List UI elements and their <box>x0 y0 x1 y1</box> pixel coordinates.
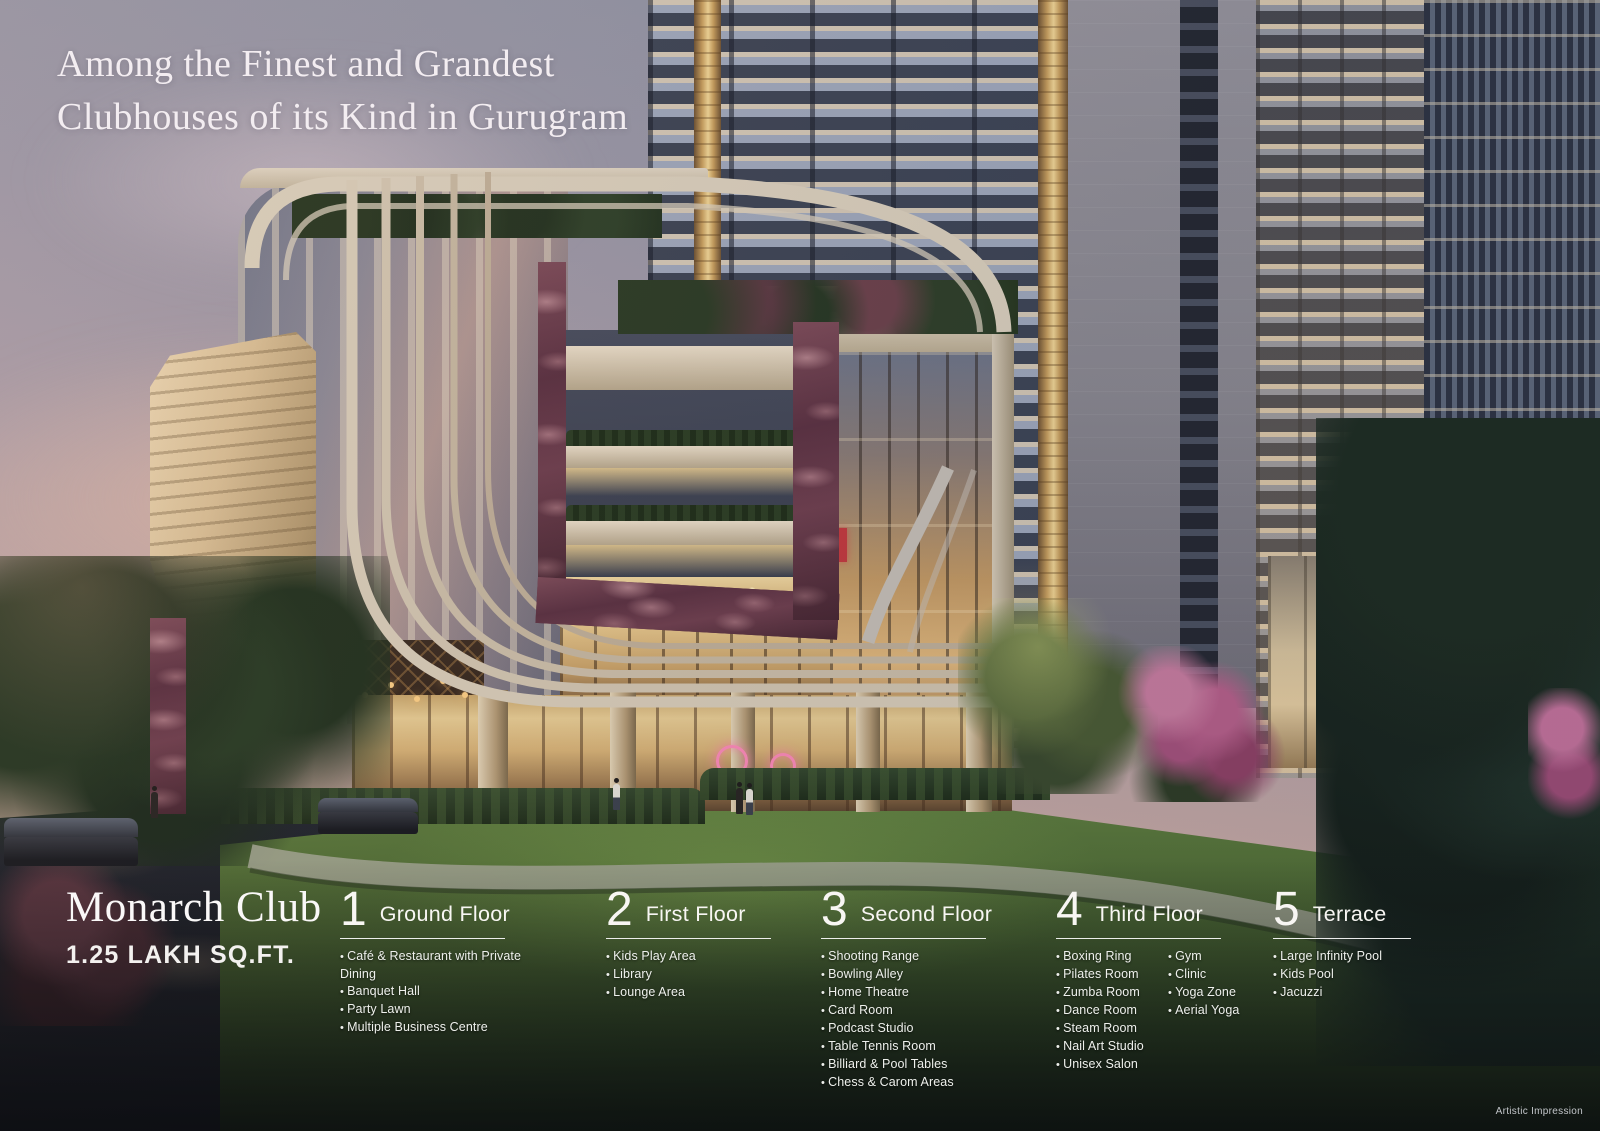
amenity-list: Large Infinity Pool Kids Pool Jacuzzi <box>1273 948 1423 1002</box>
clubhouse-parapet <box>240 168 708 188</box>
tower-recessed-balconies <box>1180 0 1218 708</box>
pedestrian <box>745 783 754 815</box>
headline-line-1: Among the Finest and Grandest <box>57 38 628 91</box>
amenity-item: Dance Room <box>1056 1002 1154 1020</box>
amenity-item: Shooting Range <box>821 948 1006 966</box>
pedestrian <box>735 782 744 814</box>
amenity-item: Aerial Yoga <box>1168 1002 1266 1020</box>
amenity-item: Podcast Studio <box>821 1020 1006 1038</box>
amenity-item: Steam Room <box>1056 1020 1154 1038</box>
amenity-list: Café & Restaurant with Private Dining Ba… <box>340 948 555 1037</box>
floor-label: Third Floor <box>1096 902 1203 929</box>
floor-label: First Floor <box>646 902 746 929</box>
red-signage <box>838 528 847 562</box>
amenity-item: Yoga Zone <box>1168 984 1266 1002</box>
pedestrian <box>612 778 621 810</box>
marble-frame-right <box>793 322 839 620</box>
amenity-item: Zumba Room <box>1056 984 1154 1002</box>
amenity-item: Clinic <box>1168 966 1266 984</box>
floor-number: 1 <box>340 890 367 929</box>
amenity-item: Card Room <box>821 1002 1006 1020</box>
amenity-item: Multiple Business Centre <box>340 1019 555 1037</box>
parked-car <box>318 798 418 834</box>
planter-hedge <box>566 430 818 446</box>
amenity-item: Unisex Salon <box>1056 1056 1154 1074</box>
divider <box>1273 938 1411 939</box>
pedestrian <box>150 786 159 818</box>
amenity-list: Gym Clinic Yoga Zone Aerial Yoga <box>1168 948 1266 1074</box>
amenity-item: Nail Art Studio <box>1056 1038 1154 1056</box>
floor-column-first: 2 First Floor Kids Play Area Library Lou… <box>606 890 776 1002</box>
amenity-item: Library <box>606 966 776 984</box>
amenity-item: Banquet Hall <box>340 983 555 1001</box>
marble-ground-column <box>150 618 186 814</box>
warm-ceiling-glow <box>562 468 814 496</box>
floor-column-third: 4 Third Floor Boxing Ring Pilates Room Z… <box>1056 890 1268 1074</box>
divider <box>821 938 986 939</box>
amenity-item: Lounge Area <box>606 984 776 1002</box>
warm-ceiling-glow <box>562 545 824 577</box>
divider <box>606 938 771 939</box>
amenity-item: Table Tennis Room <box>821 1038 1006 1056</box>
amenity-item: Kids Play Area <box>606 948 776 966</box>
amenity-item: Boxing Ring <box>1056 948 1154 966</box>
balcony-slab <box>560 446 828 468</box>
floor-number: 2 <box>606 890 633 929</box>
amenity-item: Bowling Alley <box>821 966 1006 984</box>
brochure-page: Among the Finest and Grandest Clubhouses… <box>0 0 1600 1131</box>
amenity-item: Pilates Room <box>1056 966 1154 984</box>
floor-column-second: 3 Second Floor Shooting Range Bowling Al… <box>821 890 1006 1092</box>
floor-label: Terrace <box>1313 902 1387 929</box>
divider <box>340 938 505 939</box>
amenity-item: Jacuzzi <box>1273 984 1423 1002</box>
amenity-list: Shooting Range Bowling Alley Home Theatr… <box>821 948 1006 1092</box>
amenity-item: Billiard & Pool Tables <box>821 1056 1006 1074</box>
planter-hedge <box>566 505 824 521</box>
amenity-item: Party Lawn <box>340 1001 555 1019</box>
amenity-item: Large Infinity Pool <box>1273 948 1423 966</box>
amenity-list: Kids Play Area Library Lounge Area <box>606 948 776 1002</box>
floor-number: 5 <box>1273 890 1300 929</box>
amenity-item: Café & Restaurant with Private Dining <box>340 948 555 983</box>
floor-column-ground: 1 Ground Floor Café & Restaurant with Pr… <box>340 890 555 1037</box>
floor-label: Second Floor <box>861 902 992 929</box>
amenity-item: Home Theatre <box>821 984 1006 1002</box>
marble-frame-left <box>538 262 566 594</box>
floor-label: Ground Floor <box>380 902 510 929</box>
rooftop-plants <box>292 194 662 238</box>
amenity-item: Gym <box>1168 948 1266 966</box>
floor-number: 4 <box>1056 890 1083 929</box>
headline-line-2: Clubhouses of its Kind in Gurugram <box>57 91 628 144</box>
flowering-bush <box>1106 646 1286 802</box>
flowering-bush <box>1528 688 1600 824</box>
page-title: Among the Finest and Grandest Clubhouses… <box>57 38 628 144</box>
amenity-list: Boxing Ring Pilates Room Zumba Room Danc… <box>1056 948 1154 1074</box>
floor-number: 3 <box>821 890 848 929</box>
club-name: Monarch Club <box>66 886 322 929</box>
artistic-impression-note: Artistic Impression <box>1496 1106 1583 1117</box>
club-area: 1.25 LAKH SQ.FT. <box>66 941 295 970</box>
floor-column-terrace: 5 Terrace Large Infinity Pool Kids Pool … <box>1273 890 1423 1002</box>
amenity-item: Kids Pool <box>1273 966 1423 984</box>
parked-car <box>4 818 138 866</box>
amenity-item: Chess & Carom Areas <box>821 1074 1006 1092</box>
